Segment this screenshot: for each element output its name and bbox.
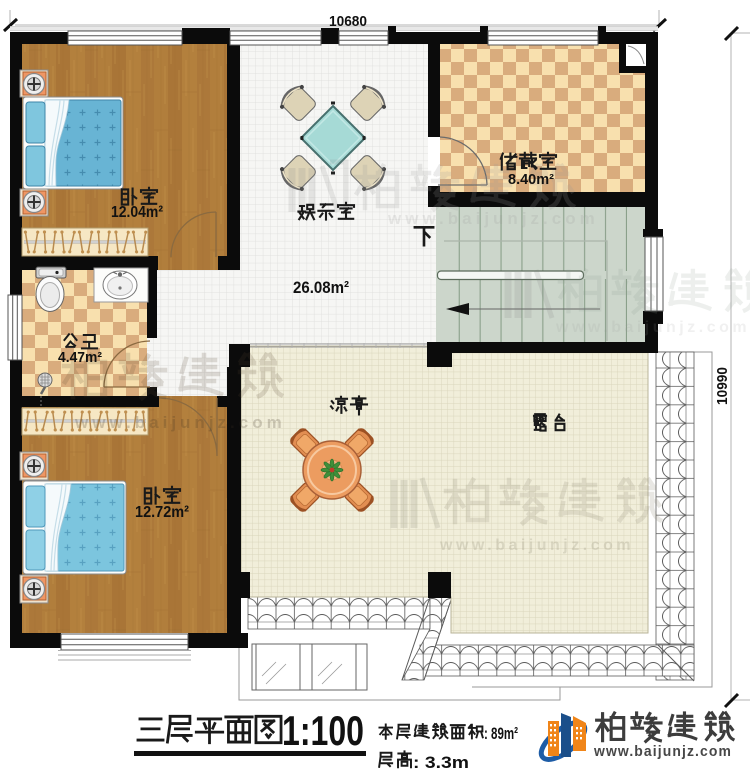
svg-text:12.72m²: 12.72m² <box>135 504 189 521</box>
svg-text:www.baijunjz.com: www.baijunjz.com <box>593 743 732 760</box>
svg-text:10990: 10990 <box>714 367 731 405</box>
svg-text:4.47m²: 4.47m² <box>58 350 102 366</box>
svg-text:www.baijunjz.com: www.baijunjz.com <box>387 209 599 228</box>
svg-text:www.baijunjz.com: www.baijunjz.com <box>74 413 286 432</box>
svg-text:www.baijunjz.com: www.baijunjz.com <box>439 537 634 554</box>
svg-text:12.04m²: 12.04m² <box>111 204 163 221</box>
svg-text:26.08m²: 26.08m² <box>293 278 349 297</box>
svg-text:10680: 10680 <box>329 13 367 30</box>
svg-text:: 3.3m: : 3.3m <box>413 754 469 772</box>
svg-text:8.40m²: 8.40m² <box>508 172 554 188</box>
svg-text:www.baijunjz.com: www.baijunjz.com <box>555 319 750 336</box>
svg-text:1:100: 1:100 <box>282 707 364 754</box>
svg-text:: 89m²: : 89m² <box>484 725 518 743</box>
